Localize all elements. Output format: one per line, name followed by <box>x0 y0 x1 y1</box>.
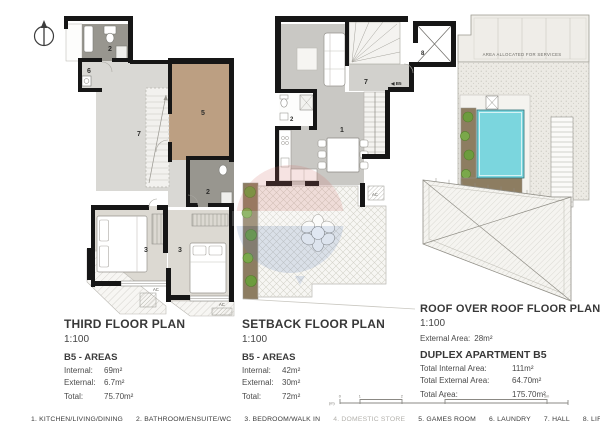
setback-total-row: Total: 72m² <box>242 392 392 401</box>
title-block-setback: SETBACK FLOOR PLAN 1:100 B5 - AREAS Inte… <box>242 317 392 401</box>
total-area-value: 175.70m² <box>512 390 546 399</box>
dining-table <box>318 138 368 172</box>
room-legend: 1. KITCHEN/LIVING/DINING 2. BATHROOM/ENS… <box>31 416 591 423</box>
third-internal-value: 69m² <box>104 366 122 375</box>
scale-bar-tick-2: 2 <box>401 395 403 399</box>
third-external-row: External: 6.7m² <box>64 378 234 387</box>
setback-internal-value: 42m² <box>282 366 300 375</box>
setback-internal-label: Internal: <box>242 366 282 375</box>
floor-plan-sheet: 2 6 7 5 2 3 3 AC AC <box>0 0 600 430</box>
ac-label-right: AC <box>219 302 225 307</box>
roof-external-value: 28m² <box>474 334 492 343</box>
third-floor-plan: 2 6 7 5 2 3 3 AC AC <box>35 16 235 316</box>
total-internal-row: Total Internal Area: 111m² <box>420 364 598 373</box>
roof-external-row: External Area: 28m² <box>420 334 598 343</box>
ac-label-left: AC <box>153 287 159 292</box>
ac-label-setback: AC <box>372 192 378 197</box>
third-total-label: Total: <box>64 392 104 401</box>
swimming-pool <box>477 110 524 178</box>
third-total-value: 75.70m² <box>104 392 133 401</box>
room-label-living: 1 <box>340 127 344 134</box>
setback-internal-row: Internal: 42m² <box>242 366 392 375</box>
title-block-roof: ROOF OVER ROOF FLOOR PLAN 1:100 External… <box>420 303 598 399</box>
legend-item-domestic-store: 4. DOMESTIC STORE <box>333 416 405 423</box>
room-label-hall-setback: 7 <box>364 79 368 86</box>
bed-right <box>190 243 226 293</box>
setback-external-row: External: 30m² <box>242 378 392 387</box>
winder-stair <box>349 22 400 64</box>
roof-over-roof-structure <box>423 178 571 301</box>
setback-external-label: External: <box>242 378 282 387</box>
legend-item-laundry: 6. LAUNDRY <box>489 416 531 423</box>
legend-item-games-room: 5. GAMES ROOM <box>418 416 476 423</box>
setback-plan-title: SETBACK FLOOR PLAN <box>242 317 392 331</box>
room-label-hall3: 7 <box>137 131 141 138</box>
staircase-third <box>146 88 169 187</box>
roof-plan-title: ROOF OVER ROOF FLOOR PLAN <box>420 303 598 315</box>
total-internal-label: Total Internal Area: <box>420 364 512 373</box>
room-label-bath-low: 2 <box>206 189 210 196</box>
total-external-label: Total External Area: <box>420 376 512 385</box>
bed-left <box>97 216 147 272</box>
roof-external-label: External Area: <box>420 334 470 343</box>
roof-plan-scale: 1:100 <box>420 318 598 329</box>
room-label-games: 5 <box>201 110 205 117</box>
room-label-bed-left: 3 <box>144 247 148 254</box>
legend-item-bathroom: 2. BATHROOM/ENSUITE/WC <box>136 416 231 423</box>
room-label-laundry: 6 <box>87 68 91 75</box>
scale-bar-unit: (m) <box>329 402 335 406</box>
legend-item-bedroom: 3. BEDROOM/WALK IN <box>244 416 320 423</box>
total-area-label: Total Area: <box>420 390 512 399</box>
total-area-row: Total Area: 175.70m² <box>420 390 598 399</box>
roof-stairs <box>551 117 573 207</box>
duplex-summary-heading: DUPLEX APARTMENT B5 <box>420 349 598 361</box>
third-total-row: Total: 75.70m² <box>64 392 234 401</box>
third-plan-title: THIRD FLOOR PLAN <box>64 317 234 331</box>
total-external-value: 64.70m² <box>512 376 541 385</box>
legend-item-hall: 7. HALL <box>544 416 570 423</box>
legend-item-lift: 8. LIFT <box>583 416 600 423</box>
setback-total-label: Total: <box>242 392 282 401</box>
third-external-value: 6.7m² <box>104 378 124 387</box>
setback-total-value: 72m² <box>282 392 300 401</box>
total-external-row: Total External Area: 64.70m² <box>420 376 598 385</box>
setback-bathroom <box>279 93 313 126</box>
setback-areas-heading: B5 - AREAS <box>242 352 392 363</box>
third-areas-heading: B5 - AREAS <box>64 352 234 363</box>
total-internal-value: 111m² <box>512 364 534 373</box>
north-arrow-icon <box>35 20 54 46</box>
setback-plan-scale: 1:100 <box>242 334 392 345</box>
services-label: AREA ALLOCATED FOR SERVICES <box>483 52 562 57</box>
third-internal-row: Internal: 69m² <box>64 366 234 375</box>
room-label-bed-right: 3 <box>178 247 182 254</box>
entry-arrow-label: ◀ B5 <box>390 81 402 86</box>
setback-external-value: 30m² <box>282 378 300 387</box>
third-internal-label: Internal: <box>64 366 104 375</box>
room-label-bath-top: 2 <box>108 46 112 53</box>
legend-item-kitchen: 1. KITCHEN/LIVING/DINING <box>31 416 123 423</box>
third-external-label: External: <box>64 378 104 387</box>
title-block-third: THIRD FLOOR PLAN 1:100 B5 - AREAS Intern… <box>64 317 234 401</box>
third-plan-scale: 1:100 <box>64 334 234 345</box>
